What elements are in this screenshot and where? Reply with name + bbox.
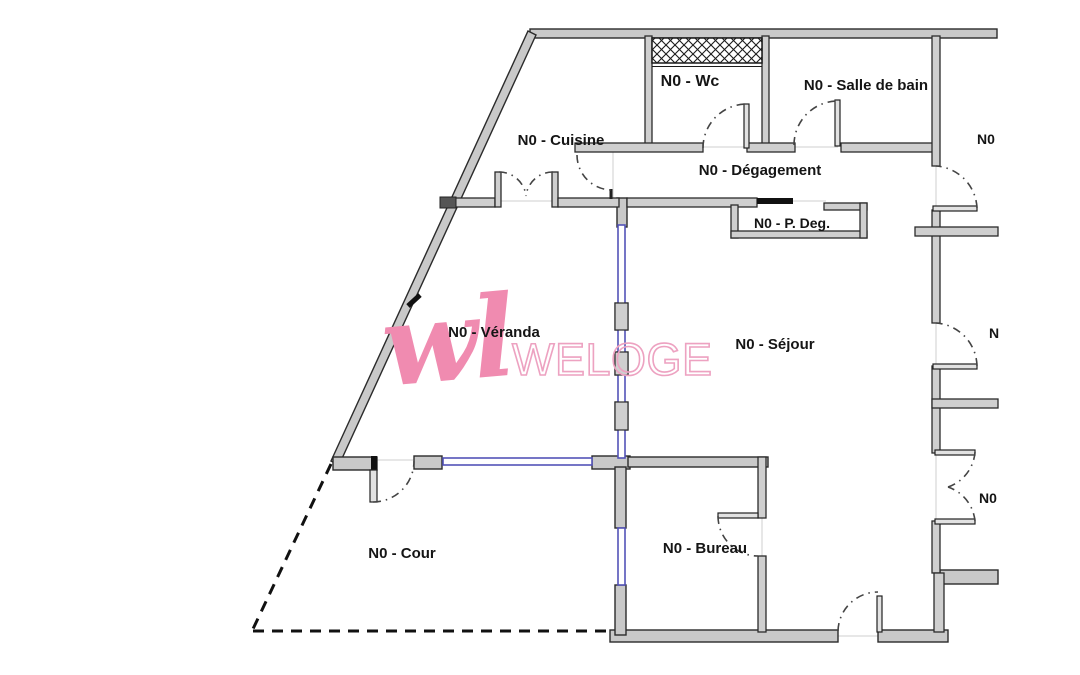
hatched-duct xyxy=(652,38,762,67)
door-arc-right-1 xyxy=(936,166,977,208)
wall-segment xyxy=(414,456,442,469)
wall-segment-pdeg xyxy=(860,203,867,238)
floor-plan-canvas: WELOGE wl N0 - Wc N0 - Salle de bain N0 … xyxy=(0,0,1080,675)
wall-segment-bureau-right xyxy=(758,556,766,632)
door-leaf xyxy=(370,470,377,502)
room-label-right-top: N0 xyxy=(977,131,995,147)
door-arc-wc xyxy=(703,104,747,148)
boundary-dashed-diagonal xyxy=(253,464,331,629)
door-leaf xyxy=(935,519,975,524)
floor-plan-screenshot: WELOGE wl N0 - Wc N0 - Salle de bain N0 … xyxy=(0,0,1080,675)
wall-segment-wc-left xyxy=(645,36,652,150)
wall-segment-wc-right xyxy=(762,36,769,146)
wall-end-cap xyxy=(371,456,377,470)
room-label-cuisine: N0 - Cuisine xyxy=(518,132,605,149)
wall-junction-block xyxy=(440,197,456,208)
door-arc-right-3a xyxy=(948,452,975,487)
door-arc-veranda-cour xyxy=(373,461,414,502)
door-leaf xyxy=(933,206,977,211)
double-door-post xyxy=(552,172,558,207)
room-label-degagement: N0 - Dégagement xyxy=(699,162,822,179)
double-door-arc-right xyxy=(526,172,553,196)
watermark-script-logo: wl xyxy=(377,271,518,413)
sliding-door xyxy=(757,198,793,204)
wall-segment-right xyxy=(932,36,940,166)
wall-segment xyxy=(455,198,495,207)
wall-segment xyxy=(615,585,626,635)
room-label-sejour: N0 - Séjour xyxy=(735,336,814,353)
door-leaf xyxy=(935,450,975,455)
room-label-right-bottom: N0 xyxy=(979,490,997,506)
door-leaf xyxy=(744,104,749,148)
door-leaf xyxy=(877,596,882,632)
room-label-right-middle: N xyxy=(989,325,999,341)
room-label-bureau: N0 - Bureau xyxy=(663,540,747,557)
door-arc-cuisine xyxy=(577,155,612,190)
wall-segment xyxy=(558,198,619,207)
wall-segment xyxy=(333,457,377,470)
room-label-salle-de-bain: N0 - Salle de bain xyxy=(804,77,928,94)
watermark-brand-text: WELOGE xyxy=(512,334,713,385)
wall-segment xyxy=(940,570,998,584)
double-door-post xyxy=(495,172,501,207)
room-label-cour: N0 - Cour xyxy=(368,545,436,562)
door-leaf xyxy=(933,364,977,369)
door-arc-right-2 xyxy=(936,323,977,366)
glazed-wall-veranda-sill xyxy=(443,458,592,465)
room-label-wc: N0 - Wc xyxy=(661,73,720,90)
watermark: WELOGE wl xyxy=(377,271,713,413)
wall-segment-cross xyxy=(915,227,998,236)
door-leaf xyxy=(835,100,840,146)
wall-segment-bureau-right xyxy=(758,457,766,518)
door-arc-right-3b xyxy=(948,487,975,521)
wall-segment xyxy=(841,143,933,152)
door-leaf xyxy=(718,513,758,518)
wall-segment-cross xyxy=(932,399,998,408)
wall-segment-right xyxy=(932,521,940,573)
wall-segment-bureau-top xyxy=(628,457,768,467)
window-mullion xyxy=(615,402,628,430)
room-label-p-deg: N0 - P. Deg. xyxy=(754,215,830,231)
glazed-wall-bureau xyxy=(618,528,625,585)
wall-segment xyxy=(615,467,626,528)
wall-segment xyxy=(747,143,795,152)
double-door-arc-left xyxy=(499,172,526,196)
wall-segment-bottom xyxy=(610,630,838,642)
wall-segment-pdeg xyxy=(731,231,867,238)
wall-segment-right xyxy=(932,366,940,453)
room-label-veranda: N0 - Véranda xyxy=(448,324,540,341)
door-arc-sejour-south xyxy=(838,592,878,631)
wall-segment-right xyxy=(934,573,944,632)
window-mullion xyxy=(615,303,628,330)
hatched-wall xyxy=(652,38,762,63)
door-arc-sdb xyxy=(794,101,838,145)
